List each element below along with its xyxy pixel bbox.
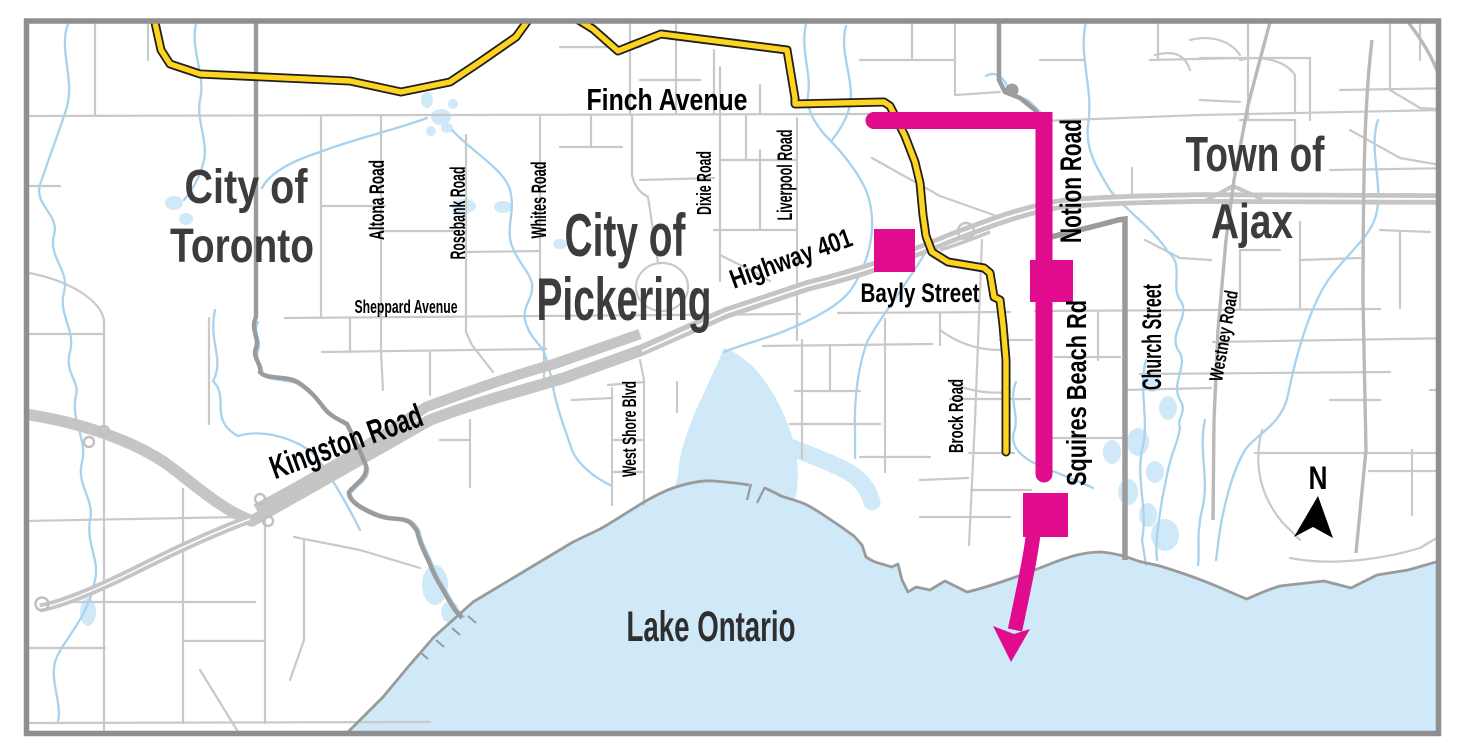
svg-text:Ajax: Ajax bbox=[1211, 195, 1293, 249]
svg-text:Dixie Road: Dixie Road bbox=[694, 151, 716, 215]
svg-text:Bayly Street: Bayly Street bbox=[861, 278, 980, 308]
svg-text:Liverpool Road: Liverpool Road bbox=[774, 130, 797, 221]
svg-text:N: N bbox=[1309, 460, 1328, 496]
svg-text:Notion Road: Notion Road bbox=[1055, 119, 1088, 243]
svg-text:Rosebank Road: Rosebank Road bbox=[447, 167, 470, 260]
svg-text:Sheppard Avenue: Sheppard Avenue bbox=[355, 297, 458, 317]
svg-text:Church Street: Church Street bbox=[1137, 284, 1167, 390]
svg-text:City of: City of bbox=[185, 161, 309, 214]
svg-text:Squires Beach Rd: Squires Beach Rd bbox=[1061, 300, 1092, 486]
svg-text:Toronto: Toronto bbox=[170, 220, 314, 273]
svg-text:Whites Road: Whites Road bbox=[528, 162, 551, 239]
svg-text:Pickering: Pickering bbox=[537, 266, 712, 333]
svg-text:Finch Avenue: Finch Avenue bbox=[587, 82, 748, 117]
svg-text:City of: City of bbox=[565, 202, 687, 269]
svg-text:Town of: Town of bbox=[1186, 128, 1326, 182]
svg-text:Lake Ontario: Lake Ontario bbox=[627, 603, 796, 651]
svg-text:Altona Road: Altona Road bbox=[366, 160, 389, 240]
svg-text:Brock Road: Brock Road bbox=[946, 379, 968, 453]
svg-text:West Shore Blvd: West Shore Blvd bbox=[620, 381, 641, 477]
